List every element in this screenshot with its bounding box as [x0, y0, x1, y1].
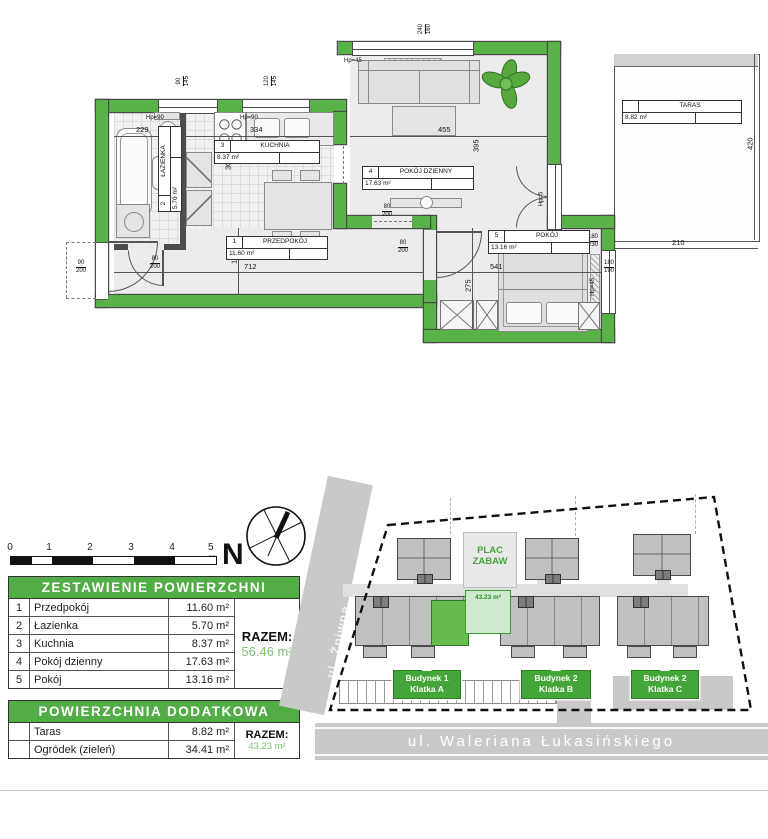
- wardrobe-icon: [440, 300, 474, 330]
- pillow-icon: [506, 302, 542, 324]
- door-size-label: 80200: [398, 240, 408, 254]
- garden-dash: [66, 298, 96, 299]
- door-size-label: 80200: [382, 204, 392, 218]
- dim-line: [436, 272, 602, 273]
- table-row: 2Łazienka5.70 m²: [9, 617, 234, 635]
- window-size-label: 120145: [264, 76, 278, 86]
- opening-dash: [343, 146, 344, 184]
- terrace-outline: [614, 54, 760, 242]
- room-label-kitchen: 3KUCHNIA 8.37 m²: [214, 140, 320, 164]
- scale-bar-strip: [10, 556, 217, 565]
- scale-tick-label: 0: [7, 542, 13, 553]
- scale-tick-label: 3: [128, 542, 134, 553]
- table-title: ZESTAWIENIE POWIERZCHNI: [9, 577, 299, 599]
- entry-door-opening: [96, 242, 108, 300]
- washing-machine-icon: [116, 204, 150, 238]
- north-letter: N: [222, 538, 244, 572]
- extra-area-table: POWIERZCHNIA DODATKOWA Taras8.82 m² Ogró…: [8, 700, 300, 759]
- dim-line: [186, 136, 334, 137]
- table-row: 1Przedpokój11.60 m²: [9, 599, 234, 617]
- scale-bar: 0 1 2 3 4 5 m: [8, 542, 223, 570]
- area-summary-table: ZESTAWIENIE POWIERZCHNI 1Przedpokój11.60…: [8, 576, 300, 689]
- dim-label: 334: [250, 126, 263, 134]
- plan-sheet: 1PRZEDPOKÓJ 11.60 m² 2ŁAZIENKA 5.70 m² 3…: [0, 0, 768, 839]
- window-size-label: 240160: [418, 24, 432, 34]
- dim-line: [614, 248, 758, 249]
- pillow-icon: [546, 302, 582, 324]
- dim-line: [350, 136, 548, 137]
- dim-line: [114, 272, 424, 273]
- window-size-label: 180190: [604, 260, 614, 274]
- garden-dash: [66, 242, 96, 243]
- page-divider: [0, 790, 768, 791]
- building-badge: Budynek 2 Klatka B: [521, 670, 591, 699]
- living-window: [352, 41, 474, 56]
- room-label-hall: 1PRZEDPOKÓJ 11.60 m²: [226, 236, 328, 260]
- kitchen-sink-icon: [284, 118, 310, 138]
- total-cell: RAZEM: 43.23 m²: [234, 723, 299, 758]
- scale-tick-label: 4: [169, 542, 175, 553]
- table-row: Taras8.82 m²: [9, 723, 234, 741]
- garden-dash: [66, 242, 67, 298]
- wardrobe-icon: [578, 302, 600, 330]
- tv-icon: [420, 196, 433, 209]
- dim-label: 541: [490, 263, 503, 271]
- room-label-terrace: TARAS 8.82 m²: [622, 100, 742, 124]
- sill-height-label: Hp=90: [240, 115, 258, 121]
- dim-label: 455: [438, 126, 451, 134]
- dim-label: 229: [136, 126, 149, 134]
- sofa-icon: [358, 60, 480, 104]
- building-badge: Budynek 1 Klatka A: [393, 670, 461, 699]
- dim-label: 395: [473, 139, 481, 152]
- plant-icon: [478, 56, 534, 112]
- dim-label: 420: [747, 137, 755, 150]
- compass-icon: [244, 504, 308, 568]
- window-size-label: 90145: [176, 76, 190, 86]
- table-title: POWIERZCHNIA DODATKOWA: [9, 701, 299, 723]
- chair-icon: [300, 170, 320, 181]
- wall-segment: [334, 112, 346, 144]
- dim-label: 210: [672, 239, 685, 247]
- tall-cabinet-icon: [186, 190, 212, 226]
- scale-tick-label: 2: [87, 542, 93, 553]
- wardrobe-icon: [476, 300, 498, 330]
- sill-height-label: Hp=45: [344, 58, 362, 64]
- opening-dash: [374, 221, 412, 222]
- sill-height-label: Hp=45: [590, 278, 596, 296]
- entry-door-leaf: [108, 241, 158, 243]
- scale-tick-label: 1: [46, 542, 52, 553]
- dining-table-icon: [264, 182, 332, 230]
- tall-cabinet-icon: [186, 152, 212, 188]
- dim-label: 712: [244, 263, 257, 271]
- floor-plan: 1PRZEDPOKÓJ 11.60 m² 2ŁAZIENKA 5.70 m² 3…: [0, 0, 768, 480]
- table-row: Ogródek (zieleń)34.41 m²: [9, 741, 234, 758]
- bedroom-door-leaf: [436, 231, 482, 233]
- table-row: 3Kuchnia8.37 m²: [9, 635, 234, 653]
- terrace-edge: [614, 54, 758, 67]
- chair-icon: [272, 170, 292, 181]
- wall-segment: [96, 295, 436, 307]
- sill-height-label: Hp=5: [538, 192, 544, 207]
- bathtub-icon: [116, 128, 152, 216]
- room-label-bathroom: 2ŁAZIENKA 5.70 m²: [158, 126, 182, 212]
- wall-segment: [334, 184, 346, 228]
- building-badge: Budynek 2 Klatka C: [631, 670, 699, 699]
- room-label-living: 4POKÓJ DZIENNY 17.63 m²: [362, 166, 474, 190]
- bedroom-door-opening: [424, 230, 436, 280]
- table-row: 4Pokój dzienny17.63 m²: [9, 653, 234, 671]
- site-plan: ul. Żniwna ul. Waleriana Łukasińskiego P…: [315, 488, 768, 775]
- table-row: 5Pokój13.16 m²: [9, 671, 234, 688]
- balcony-door: [547, 164, 562, 230]
- bathroom-door-leaf: [162, 250, 164, 286]
- door-size-label: 90200: [76, 260, 86, 274]
- door-size-label: 80200: [150, 256, 160, 270]
- dim-label: 275: [465, 279, 473, 292]
- plot-boundary: [315, 488, 768, 775]
- sill-height-label: Hp=90: [146, 115, 164, 121]
- room-label-bedroom: 5POKÓJ 13.16 m²: [488, 230, 590, 254]
